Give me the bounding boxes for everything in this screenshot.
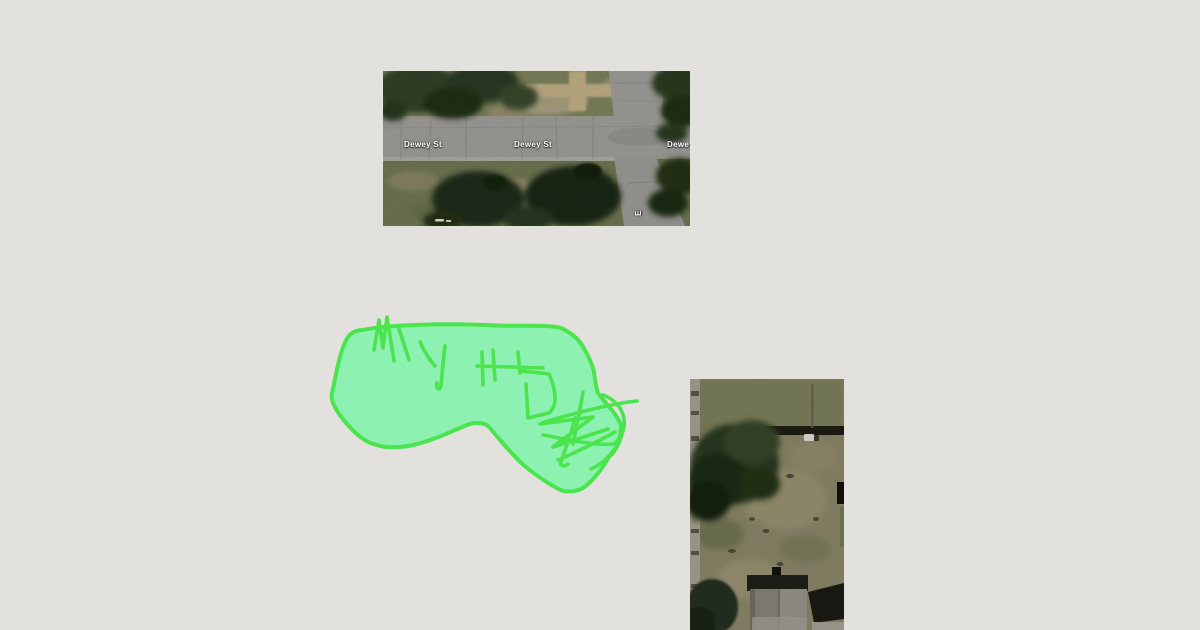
satellite-image-top: Dewey St Dewey St Dewey St E (383, 71, 690, 226)
satellite-photo-graphic (690, 379, 844, 630)
street-label-vertical-clipped: E (635, 210, 643, 216)
page-canvas: Dewey St Dewey St Dewey St E (0, 0, 1200, 630)
satellite-image-bottom (690, 379, 844, 630)
photo-noise-overlay (690, 379, 844, 630)
street-label-clipped: Dewey St (667, 141, 690, 149)
freehand-annotation-drawing (325, 310, 645, 500)
street-label: Dewey St (404, 141, 442, 149)
street-label: Dewey St (514, 141, 552, 149)
